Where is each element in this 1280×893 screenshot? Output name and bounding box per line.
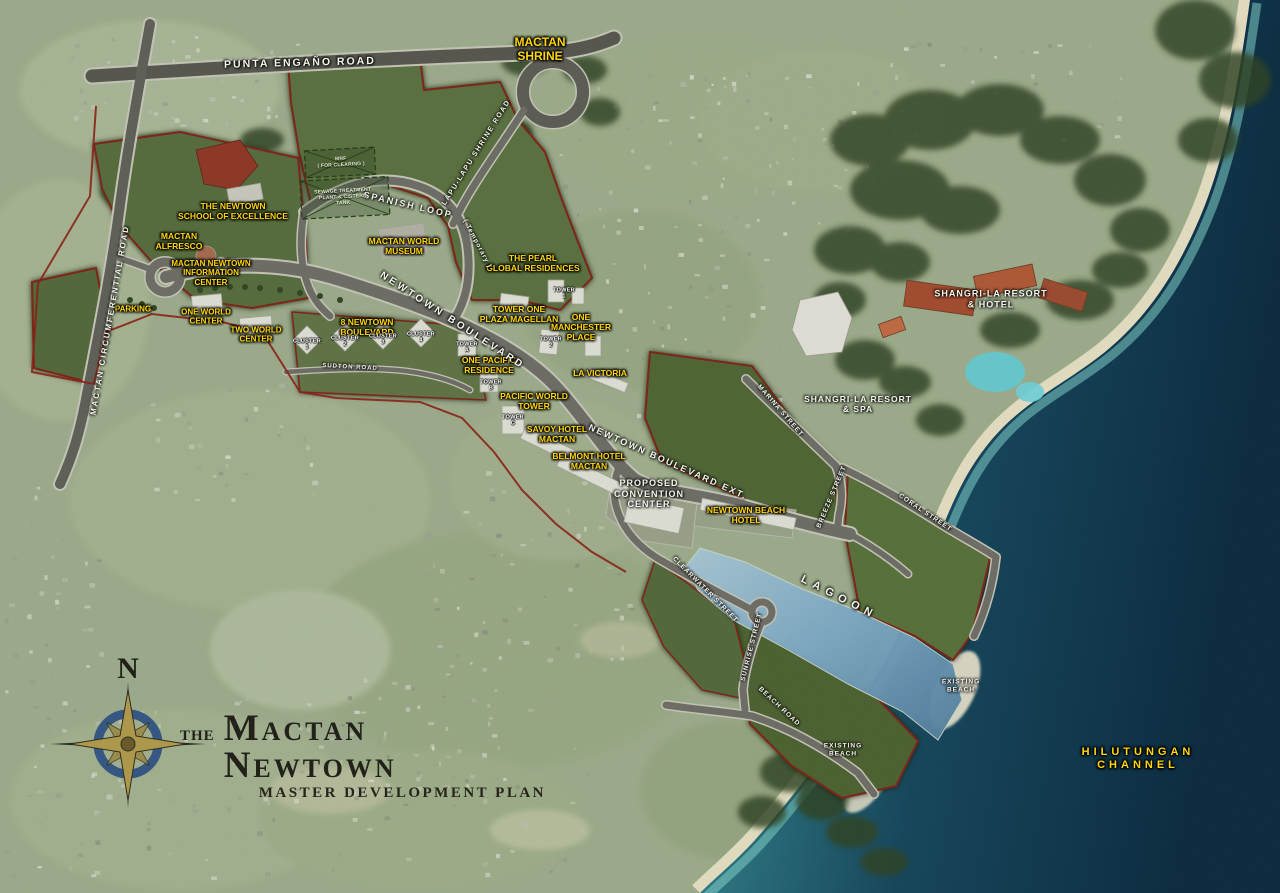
map-title-block: the Mactan Newtown MASTER DEVELOPMENT PL… — [180, 710, 546, 802]
place-label-mactan-world-museum: MACTAN WORLD MUSEUM — [369, 236, 440, 256]
place-label-savoy-hotel: SAVOY HOTEL MACTAN — [527, 424, 587, 444]
title-main: Mactan Newtown — [224, 710, 546, 784]
road-label-beach-road: BEACH ROAD — [757, 686, 802, 728]
building-label-cluster-3: CLUSTER 3 — [369, 334, 397, 347]
place-label-shangrila-spa: SHANGRI-LA RESORT & SPA — [804, 394, 912, 414]
place-label-proposed-convention-center: PROPOSED CONVENTION CENTER — [614, 478, 684, 510]
road-label-spanish-loop-note: ( Temporary ) — [461, 218, 493, 269]
place-label-two-world-center: TWO WORLD CENTER — [230, 326, 281, 345]
water-label-hilutungan-channel: HILUTUNGAN CHANNEL — [1082, 746, 1195, 772]
place-label-mactan-alfresco: MACTAN ALFRESCO — [156, 231, 203, 251]
building-label-cluster-1: CLUSTER 1 — [293, 339, 321, 352]
place-label-belmont-hotel: BELMONT HOTEL MACTAN — [552, 451, 625, 471]
building-label-tower-1: TOWER 1 — [553, 288, 575, 301]
building-label-cluster-4: CLUSTER 4 — [407, 332, 435, 345]
road-label-newtown-boulevard: NEWTOWN BOULEVARD — [377, 270, 526, 373]
building-label-tower-b: TOWER B — [480, 380, 502, 393]
title-subtitle: MASTER DEVELOPMENT PLAN — [180, 785, 546, 802]
building-label-tower-2: TOWER 2 — [540, 337, 562, 350]
place-label-parking: PARKING — [115, 304, 151, 313]
place-label-information-center: MACTAN NEWTOWN INFORMATION CENTER — [171, 259, 250, 287]
place-label-newtown-beach-hotel: NEWTOWN BEACH HOTEL — [707, 505, 785, 525]
map-title: the Mactan Newtown — [180, 710, 546, 784]
road-label-sudton: SUDTON ROAD — [322, 363, 378, 373]
label-existing-beach-north: EXISTING BEACH — [942, 678, 980, 693]
road-label-coral: CORAL STREET — [897, 492, 953, 533]
place-label-shangrila-hotel: SHANGRI-LA RESORT & HOTEL — [934, 288, 1047, 309]
title-prefix: the — [180, 721, 215, 746]
building-label-tower-a: TOWER A — [456, 342, 478, 355]
road-label-clearwater: CLEARWATER STREET — [671, 556, 740, 625]
label-existing-beach-south: EXISTING BEACH — [824, 742, 862, 757]
water-label-lagoon: LAGOON — [799, 573, 880, 623]
road-label-marina: MARINA STREET — [755, 384, 804, 439]
lot-label-mrf: MRF ( FOR CLEARING ) — [317, 156, 365, 170]
lot-label-sewage-treatment: SEWAGE TREATMENT PLANT & CISTERN TANK — [314, 188, 372, 209]
road-label-sunrise: SUNRISE STREET — [740, 612, 764, 682]
place-label-la-victoria: LA VICTORIA — [573, 368, 627, 378]
road-label-newtown-boulevard-ext: NEWTOWN BOULEVARD EXT. — [587, 422, 749, 502]
road-label-breeze: BREEZE STREET — [815, 465, 848, 529]
road-label-punta-engano: PUNTA ENGAÑO ROAD — [224, 55, 376, 71]
place-label-tower-one-plaza-magellan: TOWER ONE PLAZA MAGELLAN — [480, 304, 559, 324]
place-label-pearl-global-residences: THE PEARL GLOBAL RESIDENCES — [486, 253, 579, 273]
place-label-one-manchester-place: ONE MANCHESTER PLACE — [551, 312, 611, 342]
mactan-newtown-master-plan-map: N MACTAN SHRINE THE NEWTOWN SCHOOL OF EX… — [0, 0, 1280, 893]
building-label-tower-c: TOWER C — [502, 415, 524, 428]
road-label-lapu-lapu-shrine: LAPU-LAPU SHRINE ROAD — [441, 99, 513, 208]
place-label-mactan-shrine: MACTAN SHRINE — [514, 35, 565, 63]
building-label-cluster-2: CLUSTER 2 — [331, 336, 359, 349]
place-label-8-newtown-boulevard: 8 NEWTOWN BOULEVARD — [340, 317, 393, 337]
place-label-one-world-center: ONE WORLD CENTER — [181, 308, 231, 327]
road-label-circumferential: MACTAN CIRCUMFERENTIAL ROAD — [89, 224, 132, 416]
place-label-one-pacific-residence: ONE PACIFIC RESIDENCE — [462, 355, 516, 375]
place-label-newtown-school: THE NEWTOWN SCHOOL OF EXCELLENCE — [178, 201, 288, 221]
place-label-pacific-world-tower: PACIFIC WORLD TOWER — [500, 391, 568, 411]
road-label-spanish-loop: SPANISH LOOP — [362, 190, 453, 221]
